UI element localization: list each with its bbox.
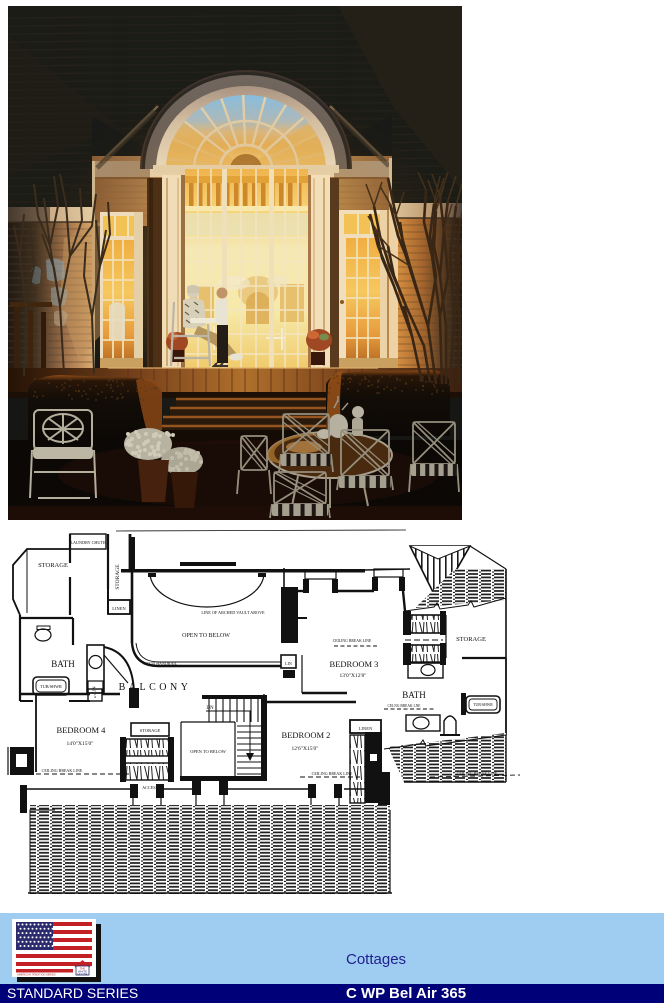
svg-text:14'0"X15'0": 14'0"X15'0"	[67, 741, 94, 747]
svg-text:BEDROOM 3: BEDROOM 3	[330, 659, 379, 669]
svg-text:TUB/SHWR: TUB/SHWR	[473, 703, 493, 707]
svg-text:AMERICAN TRADITION SERIES: AMERICAN TRADITION SERIES	[17, 973, 56, 977]
svg-text:BEDROOM 2: BEDROOM 2	[282, 730, 331, 740]
svg-text:CEILING BREAK LINE: CEILING BREAK LINE	[312, 771, 353, 776]
svg-text:LIN: LIN	[92, 687, 97, 694]
svg-text:BALCONY: BALCONY	[119, 682, 192, 693]
svg-text:STORAGE: STORAGE	[140, 728, 161, 733]
svg-text:OPEN TO BELOW: OPEN TO BELOW	[190, 749, 227, 754]
svg-text:LIN: LIN	[285, 661, 292, 666]
svg-text:CEILING BREAK LINE: CEILING BREAK LINE	[42, 768, 83, 773]
svg-text:STORAGE: STORAGE	[456, 636, 486, 643]
svg-text:WOOD HANDRAIL: WOOD HANDRAIL	[143, 661, 178, 666]
svg-text:BATH: BATH	[402, 690, 426, 700]
svg-text:STORAGE: STORAGE	[38, 562, 68, 569]
svg-text:HOUSE: HOUSE	[78, 972, 88, 976]
svg-text:STORAGE: STORAGE	[115, 564, 121, 590]
svg-text:LINE OF ARCHED VAULT ABOVE: LINE OF ARCHED VAULT ABOVE	[201, 610, 265, 615]
svg-text:DN: DN	[206, 706, 214, 711]
svg-text:12'6"X15'0": 12'6"X15'0"	[292, 746, 319, 752]
svg-text:LAUNDRY CHUTE: LAUNDRY CHUTE	[70, 540, 106, 545]
svg-text:LINEN: LINEN	[112, 606, 126, 611]
svg-text:CEILING BREAK LINE: CEILING BREAK LINE	[333, 639, 372, 643]
svg-text:CELNG BREAK LNE: CELNG BREAK LNE	[388, 704, 422, 708]
svg-text:CEILING BREAK LINE: CEILING BREAK LINE	[457, 771, 498, 776]
svg-text:13'0"X12'8": 13'0"X12'8"	[340, 673, 367, 679]
svg-text:BEDROOM 4: BEDROOM 4	[57, 725, 107, 735]
svg-text:TUB/SHWR: TUB/SHWR	[40, 684, 62, 689]
svg-text:OPEN TO BELOW: OPEN TO BELOW	[182, 633, 230, 639]
svg-text:LINEN: LINEN	[359, 726, 373, 731]
svg-text:BATH: BATH	[51, 659, 75, 669]
